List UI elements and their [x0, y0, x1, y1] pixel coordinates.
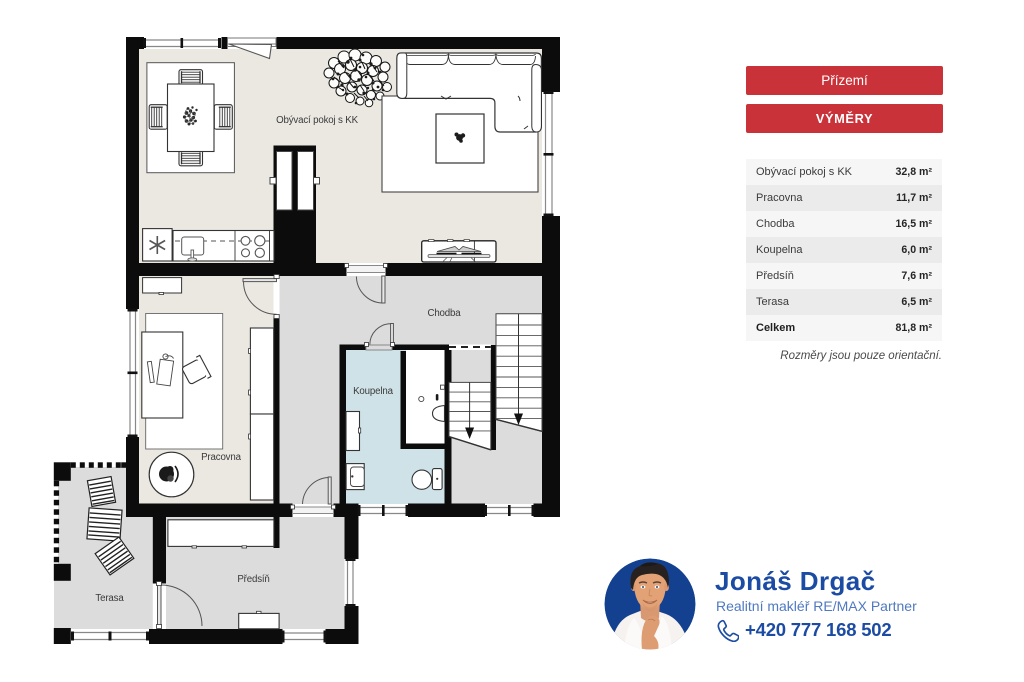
svg-text:Pracovna: Pracovna — [201, 452, 241, 463]
svg-text:Předsíň: Předsíň — [237, 574, 269, 585]
svg-text:Terasa: Terasa — [95, 593, 124, 604]
svg-text:Koupelna: Koupelna — [353, 386, 394, 397]
svg-text:Chodba: Chodba — [427, 308, 461, 319]
svg-text:Obývací pokoj s KK: Obývací pokoj s KK — [276, 115, 359, 126]
